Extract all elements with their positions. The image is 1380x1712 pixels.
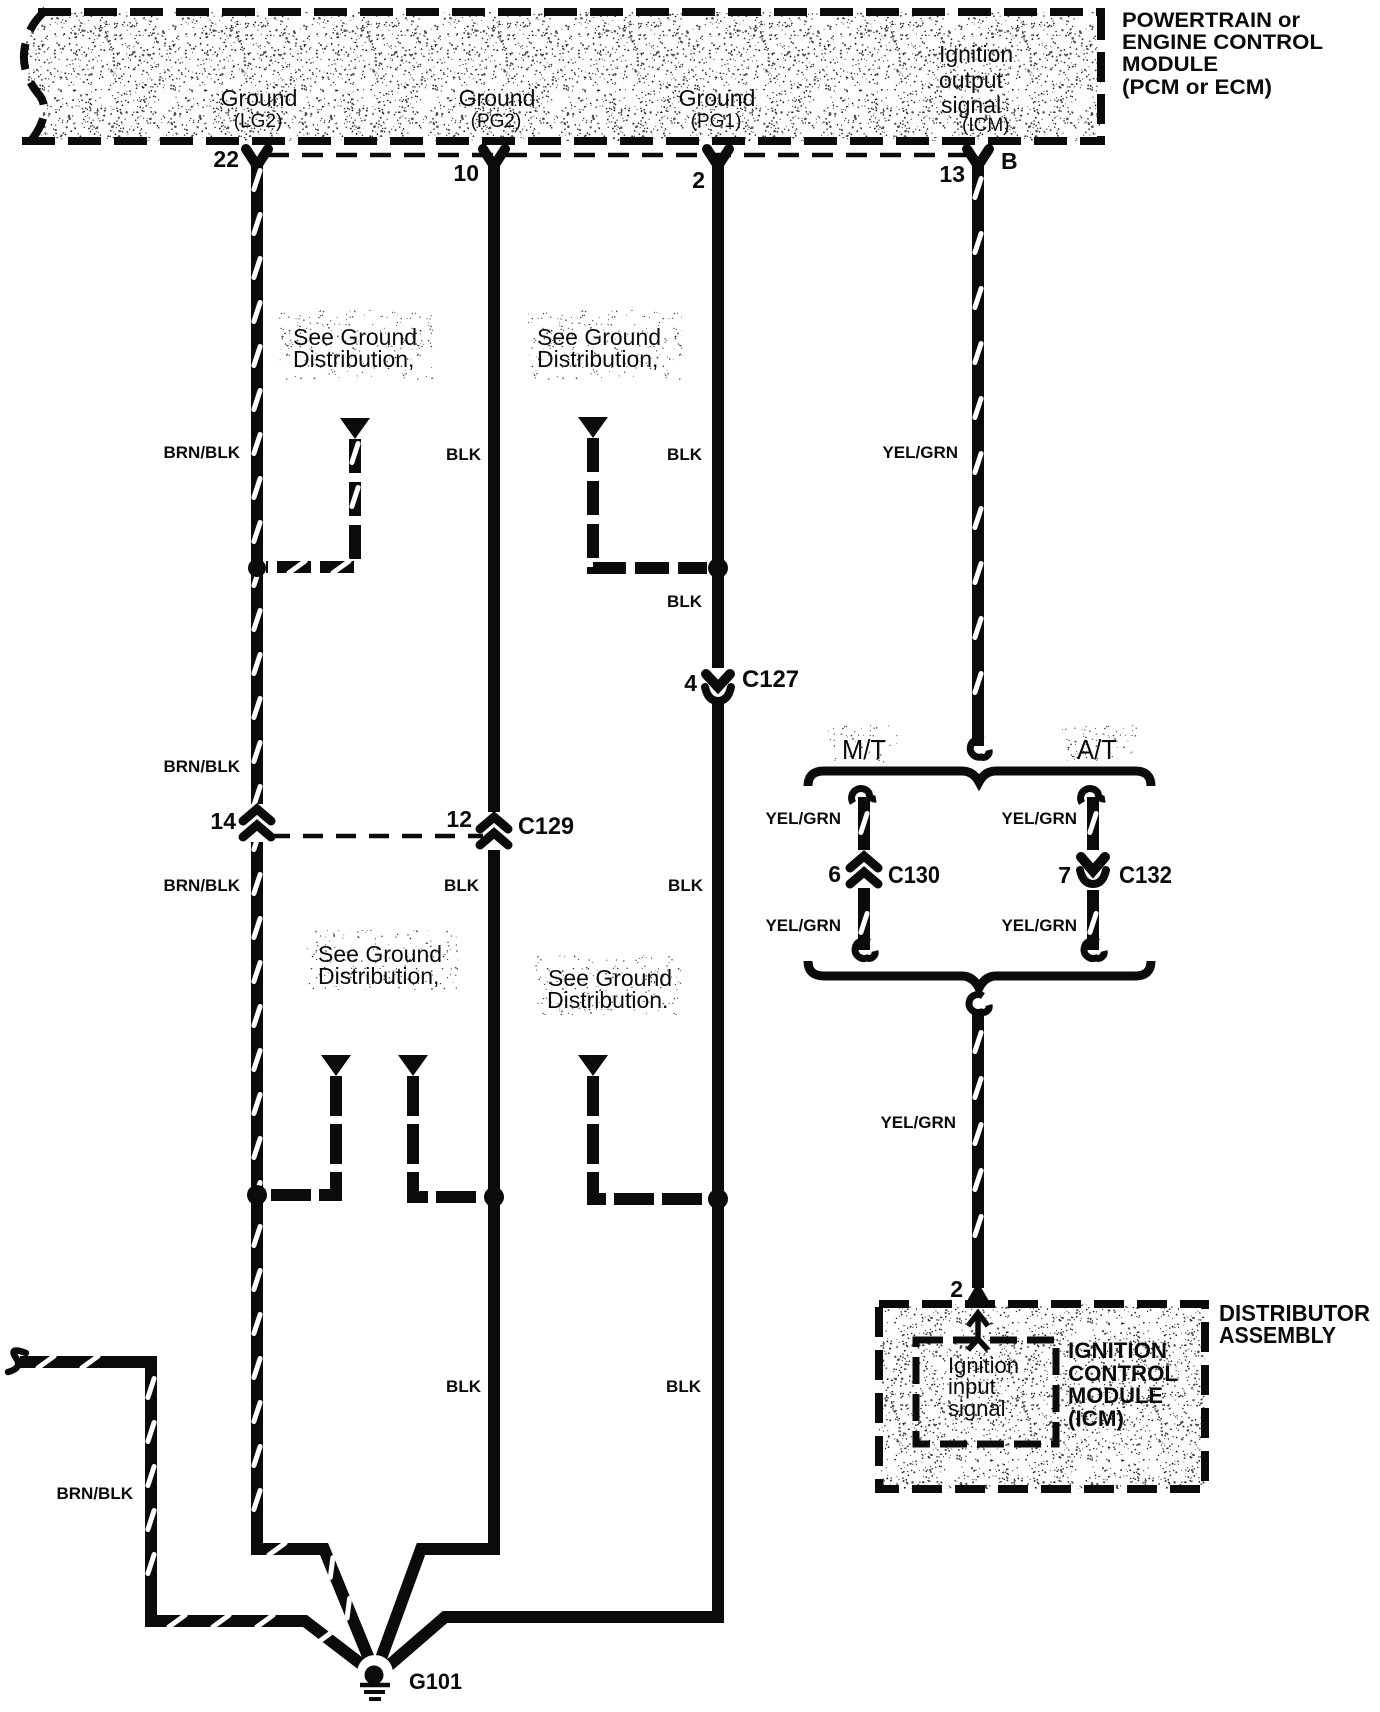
svg-text:B: B [1001, 148, 1018, 174]
svg-text:C127: C127 [742, 666, 799, 693]
svg-text:YEL/GRN: YEL/GRN [882, 443, 958, 462]
svg-text:(ICM): (ICM) [962, 115, 1009, 136]
svg-text:(LG2): (LG2) [234, 111, 283, 132]
svg-text:7: 7 [1058, 862, 1071, 888]
svg-text:POWERTRAIN or: POWERTRAIN or [1122, 9, 1300, 32]
svg-text:13: 13 [939, 161, 965, 187]
svg-text:BLK: BLK [446, 445, 482, 464]
svg-text:Ground: Ground [459, 85, 536, 111]
svg-text:(PCM or ECM): (PCM or ECM) [1122, 76, 1272, 99]
svg-text:Ignition: Ignition [939, 41, 1013, 67]
svg-text:YEL/GRN: YEL/GRN [765, 809, 841, 828]
svg-text:G101: G101 [409, 1669, 462, 1694]
svg-text:(PG2): (PG2) [471, 111, 522, 132]
svg-text:BRN/BLK: BRN/BLK [164, 876, 241, 895]
svg-text:C132: C132 [1119, 862, 1172, 889]
svg-text:Distribution,: Distribution, [318, 963, 439, 989]
svg-text:BLK: BLK [668, 876, 704, 895]
svg-text:6: 6 [828, 861, 841, 887]
svg-text:BRN/BLK: BRN/BLK [164, 757, 241, 776]
svg-text:2: 2 [692, 167, 705, 193]
svg-text:YEL/GRN: YEL/GRN [880, 1113, 956, 1132]
svg-text:12: 12 [446, 806, 472, 832]
svg-text:IGNITION: IGNITION [1068, 1338, 1167, 1363]
svg-text:ASSEMBLY: ASSEMBLY [1219, 1322, 1336, 1348]
svg-text:BRN/BLK: BRN/BLK [164, 443, 241, 462]
svg-text:Distribution,: Distribution, [293, 346, 414, 372]
svg-text:14: 14 [210, 808, 236, 834]
svg-text:Distribution,: Distribution, [537, 346, 658, 372]
svg-text:A/T: A/T [1077, 734, 1117, 765]
svg-text:YEL/GRN: YEL/GRN [1001, 809, 1077, 828]
svg-text:Ground: Ground [679, 85, 756, 111]
svg-text:ENGINE CONTROL: ENGINE CONTROL [1122, 31, 1323, 54]
svg-text:output: output [939, 67, 1004, 93]
svg-text:4: 4 [684, 670, 697, 696]
svg-text:BLK: BLK [667, 592, 703, 611]
svg-text:BLK: BLK [667, 445, 703, 464]
svg-text:Ground: Ground [221, 85, 298, 111]
svg-text:2: 2 [950, 1276, 963, 1302]
svg-text:MODULE: MODULE [1068, 1383, 1163, 1408]
svg-text:YEL/GRN: YEL/GRN [1001, 916, 1077, 935]
svg-text:BLK: BLK [666, 1377, 702, 1396]
svg-text:C130: C130 [888, 862, 940, 889]
svg-text:(PG1): (PG1) [691, 111, 742, 132]
svg-text:22: 22 [213, 146, 239, 172]
svg-text:C129: C129 [518, 813, 574, 840]
svg-text:signal: signal [948, 1396, 1005, 1421]
svg-text:M/T: M/T [842, 734, 886, 765]
svg-text:Distribution.: Distribution. [547, 987, 668, 1013]
svg-text:(ICM): (ICM) [1068, 1406, 1124, 1431]
svg-text:10: 10 [453, 160, 479, 186]
svg-text:BRN/BLK: BRN/BLK [57, 1484, 134, 1503]
svg-text:BLK: BLK [444, 876, 480, 895]
svg-text:MODULE: MODULE [1122, 53, 1218, 76]
svg-text:BLK: BLK [446, 1377, 482, 1396]
svg-text:YEL/GRN: YEL/GRN [765, 916, 841, 935]
